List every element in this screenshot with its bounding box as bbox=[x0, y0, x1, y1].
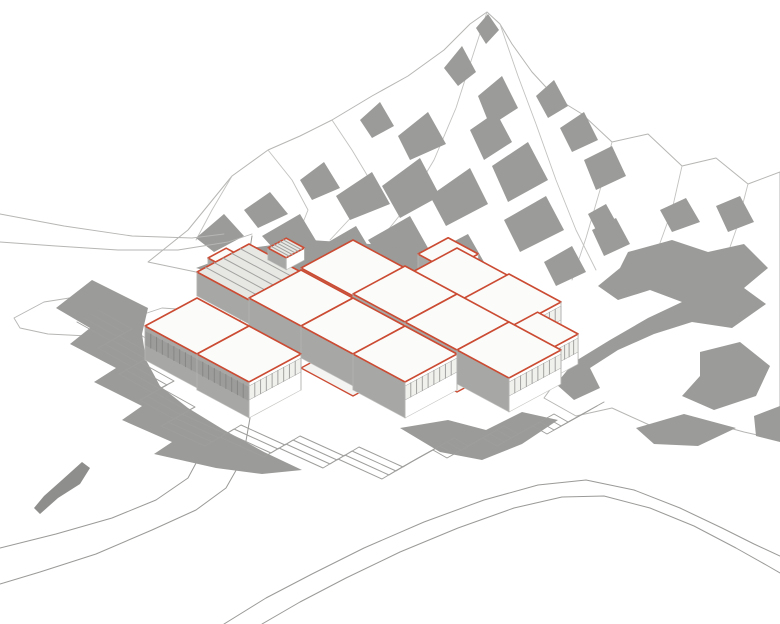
site-render bbox=[0, 0, 780, 624]
ground-shadow bbox=[400, 412, 558, 460]
site-render-canvas bbox=[0, 0, 780, 624]
road-bottom-outer-edge bbox=[224, 480, 780, 624]
road-embankment-patch bbox=[34, 462, 90, 514]
